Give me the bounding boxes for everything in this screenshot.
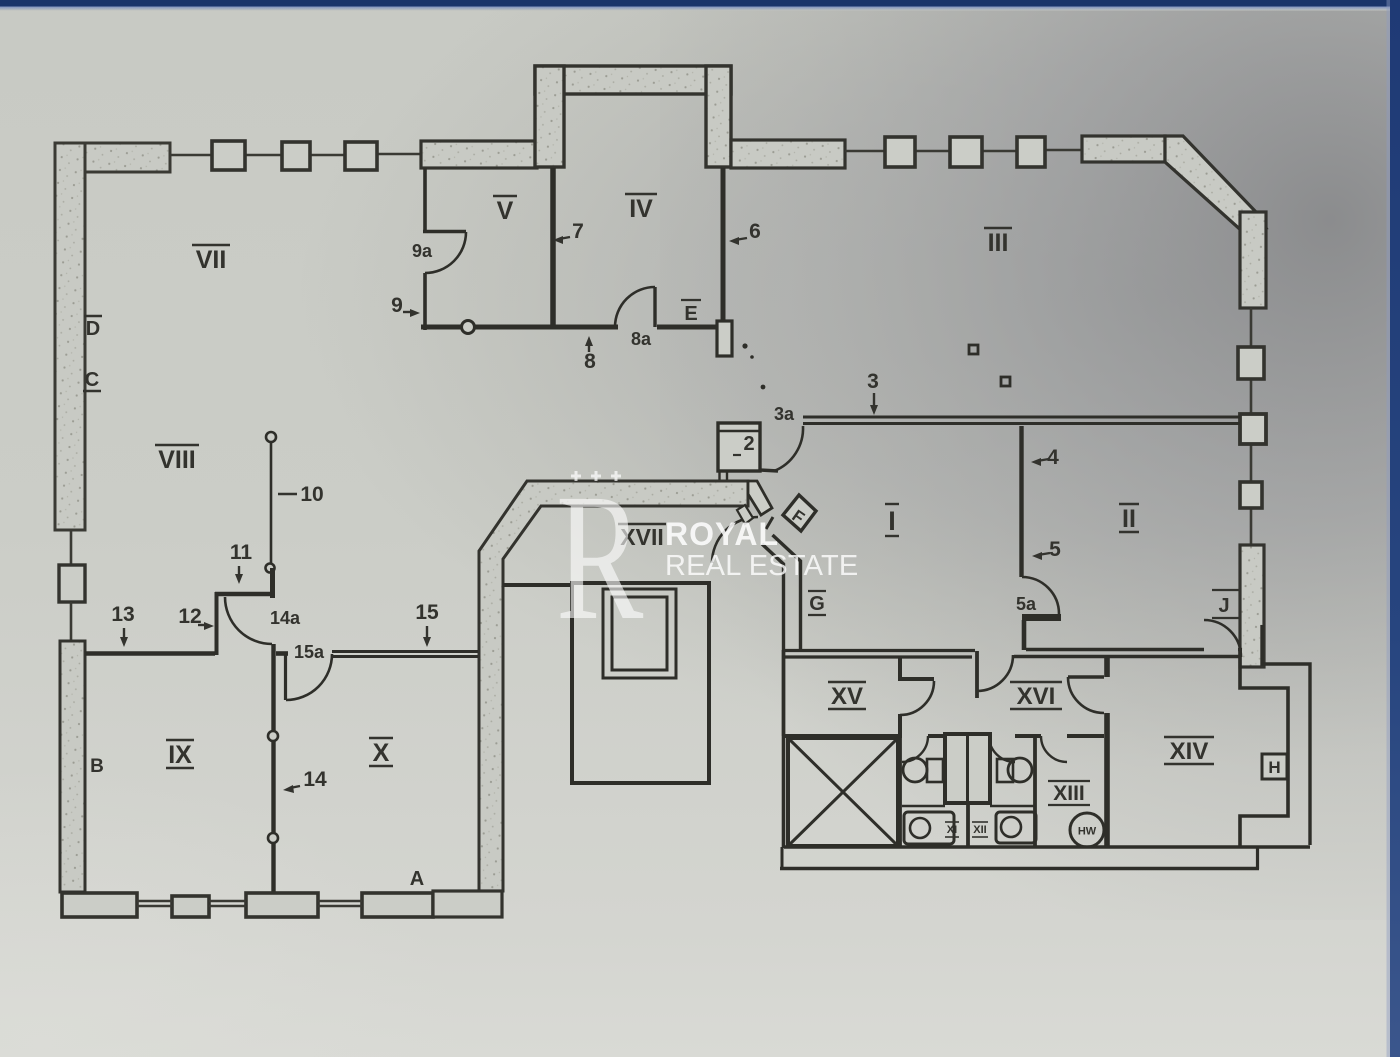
svg-text:C: C	[85, 369, 99, 391]
svg-text:5a: 5a	[1016, 594, 1037, 614]
svg-text:7: 7	[572, 220, 584, 243]
svg-text:III: III	[988, 229, 1009, 257]
svg-text:2: 2	[743, 433, 754, 455]
svg-text:REAL ESTATE: REAL ESTATE	[665, 550, 858, 582]
svg-text:XIV: XIV	[1170, 738, 1209, 765]
svg-text:4: 4	[1047, 446, 1059, 469]
svg-text:XIII: XIII	[1053, 782, 1085, 805]
svg-text:14a: 14a	[270, 608, 301, 628]
svg-text:E: E	[684, 303, 697, 325]
svg-text:X: X	[373, 739, 390, 767]
svg-text:G: G	[809, 593, 825, 615]
svg-text:13: 13	[111, 603, 134, 626]
svg-text:V: V	[497, 197, 514, 225]
svg-text:II: II	[1122, 505, 1136, 533]
svg-text:R: R	[556, 457, 644, 658]
svg-text:J: J	[1218, 595, 1229, 617]
svg-text:A: A	[410, 868, 424, 890]
svg-text:XV: XV	[831, 683, 863, 710]
svg-text:XI: XI	[947, 824, 957, 836]
svg-text:10: 10	[300, 483, 323, 506]
svg-text:6: 6	[749, 220, 761, 243]
svg-text:9a: 9a	[412, 241, 433, 261]
svg-text:D: D	[86, 318, 100, 340]
svg-text:IX: IX	[168, 741, 192, 769]
svg-text:VII: VII	[196, 246, 227, 274]
svg-text:15: 15	[415, 601, 439, 624]
svg-text:14: 14	[303, 768, 327, 791]
svg-text:3a: 3a	[774, 404, 795, 424]
svg-text:9: 9	[391, 294, 403, 317]
svg-text:11: 11	[230, 541, 253, 564]
svg-text:XVI: XVI	[1017, 683, 1056, 710]
svg-text:8a: 8a	[631, 329, 652, 349]
svg-text:H: H	[1268, 758, 1280, 777]
svg-text:8: 8	[584, 350, 596, 373]
svg-text:15a: 15a	[294, 642, 325, 662]
svg-text:XII: XII	[973, 824, 986, 836]
svg-text:3: 3	[867, 370, 879, 393]
svg-text:I: I	[888, 506, 896, 536]
svg-text:HW: HW	[1078, 826, 1097, 838]
svg-text:IV: IV	[629, 195, 653, 223]
svg-text:B: B	[90, 756, 104, 777]
svg-text:5: 5	[1049, 538, 1061, 561]
svg-text:ROYAL: ROYAL	[665, 516, 779, 552]
svg-text:VIII: VIII	[158, 446, 196, 474]
